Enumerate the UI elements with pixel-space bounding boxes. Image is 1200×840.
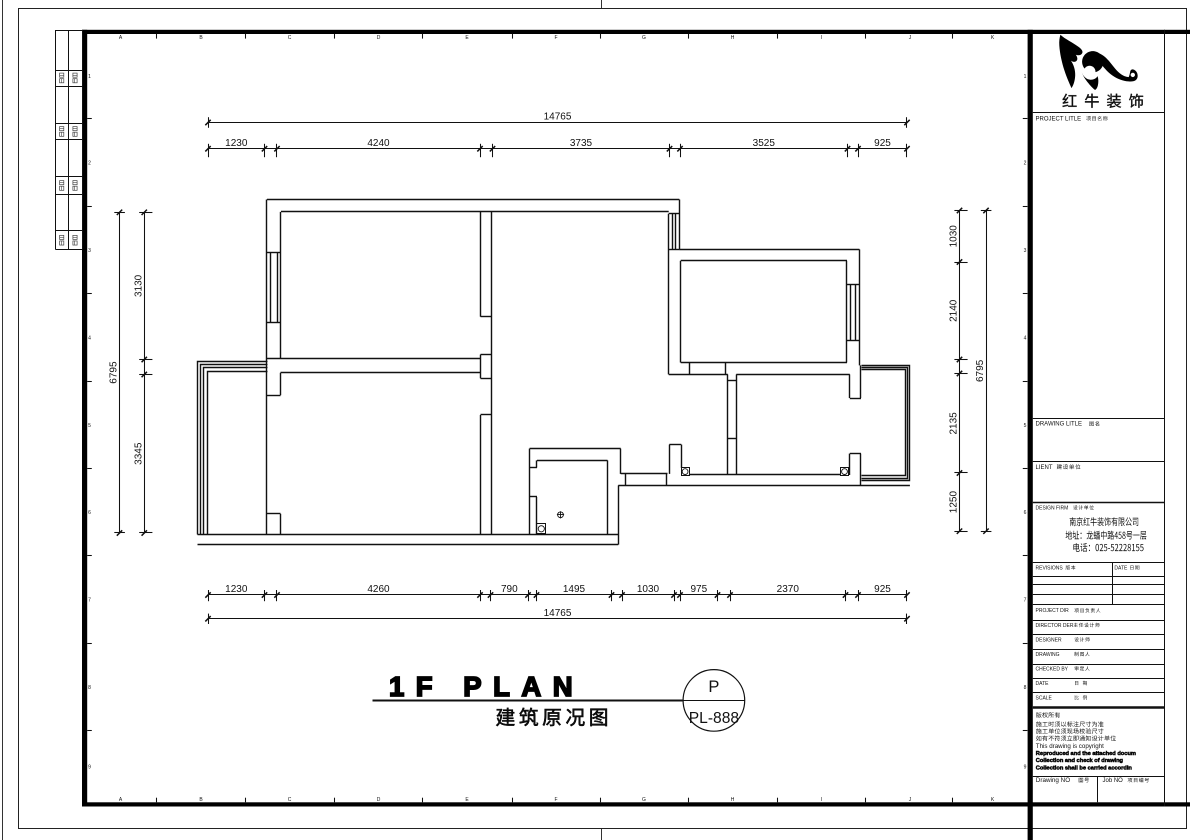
- svg-text:This drawing is copyright: This drawing is copyright: [1036, 743, 1104, 750]
- svg-text:1030: 1030: [637, 584, 660, 595]
- svg-text:DRAWING: DRAWING: [1036, 652, 1060, 658]
- svg-text:DATE: DATE: [1114, 565, 1128, 571]
- svg-text:8: 8: [88, 685, 91, 691]
- svg-text:1: 1: [88, 74, 91, 80]
- svg-text:G: G: [642, 35, 646, 41]
- svg-text:PROJECT DIR: PROJECT DIR: [1036, 608, 1070, 614]
- svg-text:14765: 14765: [544, 112, 572, 123]
- svg-text:Collection and check of drawin: Collection and check of drawing: [1036, 758, 1124, 764]
- svg-text:790: 790: [501, 584, 518, 595]
- svg-text:6: 6: [88, 510, 91, 516]
- svg-text:14765: 14765: [544, 608, 572, 619]
- svg-text:REVISIONS: REVISIONS: [1036, 565, 1064, 571]
- svg-text:Collection shall be carried ac: Collection shall be carried accordin: [1036, 765, 1133, 771]
- svg-text:2: 2: [1024, 161, 1027, 167]
- svg-text:DATE: DATE: [1036, 681, 1050, 687]
- svg-text:G: G: [642, 797, 646, 803]
- svg-text:DRAWING LITLE: DRAWING LITLE: [1036, 422, 1082, 428]
- svg-text:2: 2: [88, 161, 91, 167]
- svg-text:4: 4: [88, 335, 91, 341]
- svg-text:925: 925: [874, 584, 891, 595]
- svg-text:I: I: [821, 35, 822, 41]
- svg-text:6795: 6795: [975, 359, 986, 382]
- svg-text:DESIGN FIRM: DESIGN FIRM: [1036, 505, 1069, 511]
- svg-text:PROJECT LITLE: PROJECT LITLE: [1036, 116, 1082, 122]
- svg-text:SCALE: SCALE: [1036, 695, 1053, 701]
- svg-text:2370: 2370: [777, 584, 800, 595]
- svg-text:8: 8: [1024, 685, 1027, 691]
- svg-text:3: 3: [88, 248, 91, 254]
- svg-text:6: 6: [1024, 510, 1027, 516]
- svg-text:I: I: [821, 797, 822, 803]
- svg-text:925: 925: [874, 138, 891, 149]
- svg-text:5: 5: [1024, 423, 1027, 429]
- svg-text:3130: 3130: [133, 274, 144, 297]
- svg-text:3735: 3735: [570, 138, 593, 149]
- svg-text:LIENT: LIENT: [1036, 465, 1053, 471]
- svg-text:PL-888: PL-888: [689, 710, 739, 727]
- svg-text:F: F: [554, 35, 557, 41]
- svg-text:3345: 3345: [133, 442, 144, 465]
- svg-text:2140: 2140: [949, 299, 960, 322]
- svg-text:4240: 4240: [367, 138, 390, 149]
- svg-text:Job NO: Job NO: [1103, 778, 1124, 784]
- svg-text:1030: 1030: [949, 225, 960, 248]
- svg-text:7: 7: [88, 598, 91, 604]
- svg-text:H: H: [731, 35, 735, 41]
- svg-text:Drawing NO: Drawing NO: [1036, 777, 1070, 784]
- svg-text:5: 5: [88, 423, 91, 429]
- svg-text:1495: 1495: [563, 584, 586, 595]
- svg-text:1250: 1250: [949, 491, 960, 514]
- svg-text:D: D: [377, 797, 381, 803]
- svg-text:4260: 4260: [367, 584, 390, 595]
- svg-text:7: 7: [1024, 598, 1027, 604]
- svg-text:D: D: [377, 35, 381, 41]
- svg-text:975: 975: [690, 584, 707, 595]
- svg-text:Reproduced and the attached do: Reproduced and the attached docum: [1036, 751, 1136, 757]
- svg-text:9: 9: [88, 765, 91, 771]
- svg-text:H: H: [731, 797, 735, 803]
- svg-text:C: C: [288, 797, 292, 803]
- svg-text:DESIGNER: DESIGNER: [1036, 637, 1063, 643]
- svg-text:CHECKED BY: CHECKED BY: [1036, 666, 1069, 672]
- svg-text:1: 1: [1024, 74, 1027, 80]
- svg-text:1230: 1230: [225, 584, 248, 595]
- svg-text:3: 3: [1024, 248, 1027, 254]
- svg-text:9: 9: [1024, 765, 1027, 771]
- svg-text:DIRECTOR DER: DIRECTOR DER: [1036, 623, 1074, 629]
- svg-text:C: C: [288, 35, 292, 41]
- svg-text:6795: 6795: [109, 361, 120, 384]
- svg-text:4: 4: [1024, 335, 1027, 341]
- svg-text:3525: 3525: [753, 138, 776, 149]
- svg-text:1230: 1230: [225, 138, 248, 149]
- svg-text:P: P: [708, 678, 719, 696]
- svg-text:F: F: [554, 797, 557, 803]
- svg-text:1F PLAN: 1F PLAN: [389, 671, 584, 702]
- svg-text:2135: 2135: [949, 412, 960, 435]
